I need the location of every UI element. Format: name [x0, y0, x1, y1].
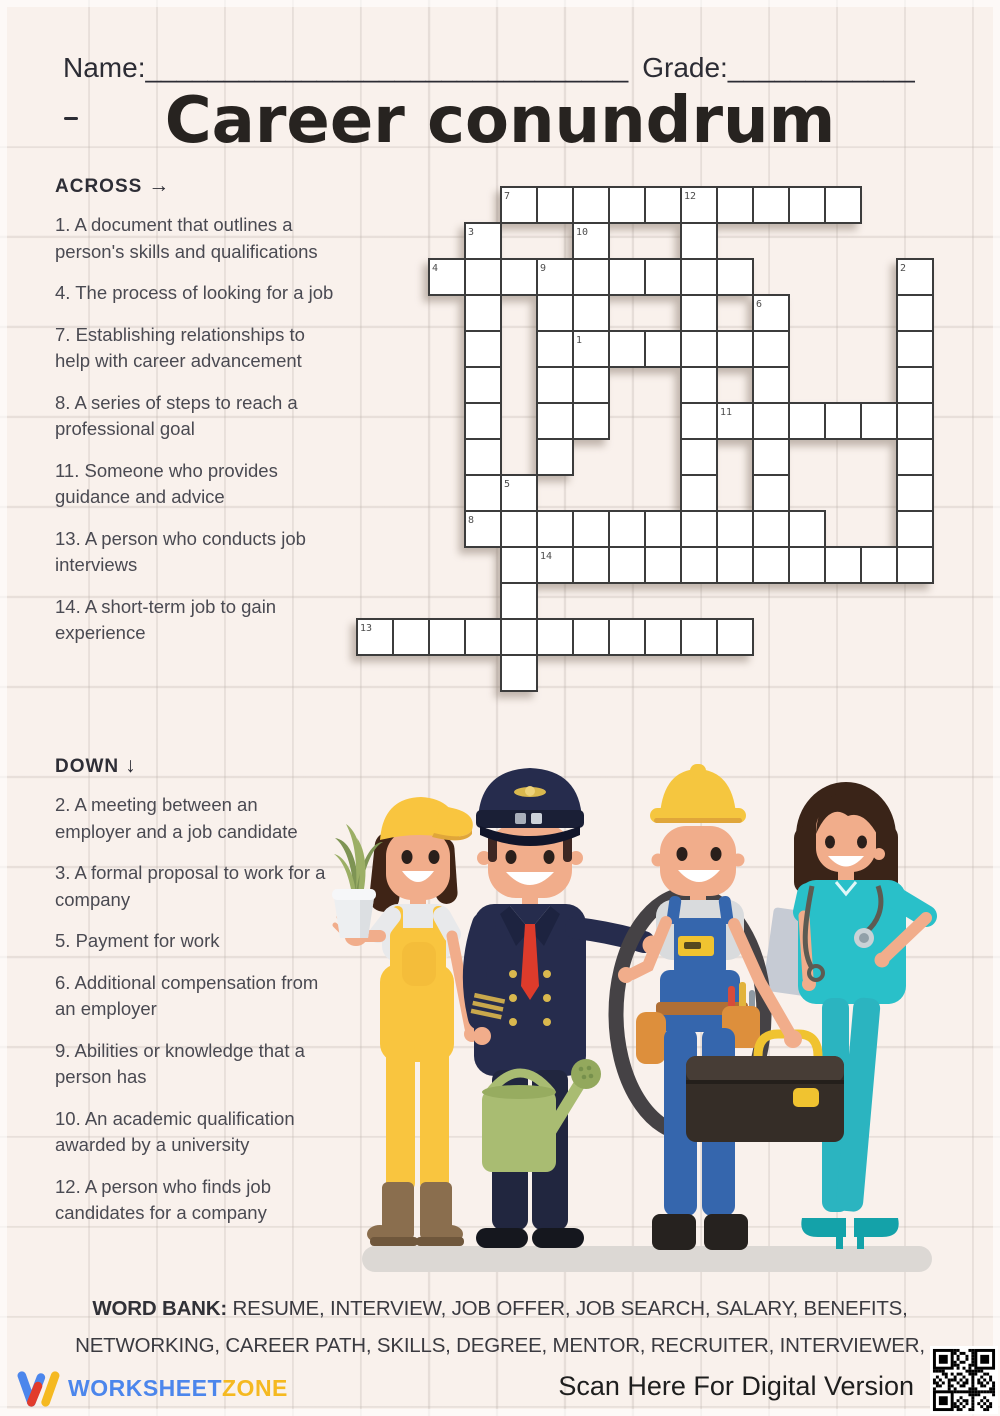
- puzzle-cell-r12c8: [645, 619, 681, 655]
- puzzle-cell-r3c5: [537, 295, 573, 331]
- puzzle-cell-r7c3: [465, 439, 501, 475]
- puzzle-cell-r0c6: [573, 187, 609, 223]
- word-bank-label: WORD BANK:: [92, 1297, 227, 1320]
- puzzle-cell-r10c14: [861, 547, 897, 583]
- puzzle-cell-r4c9: [681, 331, 717, 367]
- puzzle-cell-r9c11: [753, 511, 789, 547]
- clue-down-12: 12. A person who finds job candidates fo…: [55, 1174, 337, 1227]
- puzzle-cell-r9c6: [573, 511, 609, 547]
- puzzle-cell-r12c7: [609, 619, 645, 655]
- puzzle-cell-r4c3: [465, 331, 501, 367]
- puzzle-cell-r3c9: [681, 295, 717, 331]
- puzzle-cell-r5c15: [897, 367, 933, 403]
- puzzle-cell-r8c9: [681, 475, 717, 511]
- platform-shape: [362, 1246, 932, 1272]
- puzzle-cell-r5c3: [465, 367, 501, 403]
- puzzle-cell-r4c15: [897, 331, 933, 367]
- clue-across-13: 13. A person who conducts job interviews: [55, 526, 337, 579]
- puzzle-number-4: 4: [432, 263, 438, 274]
- puzzle-cell-r6c11: [753, 403, 789, 439]
- puzzle-cell-r8c3: [465, 475, 501, 511]
- puzzle-cell-r3c15: [897, 295, 933, 331]
- puzzle-number-10: 10: [576, 227, 588, 238]
- puzzle-cell-r7c5: [537, 439, 573, 475]
- grade-label: Grade:: [642, 52, 728, 83]
- puzzle-cell-r7c9: [681, 439, 717, 475]
- puzzle-cell-r2c8: [645, 259, 681, 295]
- puzzle-cell-r10c11: [753, 547, 789, 583]
- clue-down-3: 3. A formal proposal to work for a compa…: [55, 860, 337, 913]
- puzzle-cell-r5c9: [681, 367, 717, 403]
- puzzle-cell-r10c12: [789, 547, 825, 583]
- workers-illustration: [330, 740, 970, 1280]
- clue-down-9: 9. Abilities or knowledge that a person …: [55, 1038, 337, 1091]
- clue-across-4: 4. The process of looking for a job: [55, 280, 337, 307]
- clue-down-2: 2. A meeting between an employer and a j…: [55, 792, 337, 845]
- puzzle-cell-r0c13: [825, 187, 861, 223]
- puzzle-cell-r6c3: [465, 403, 501, 439]
- puzzle-number-6: 6: [756, 299, 762, 310]
- puzzle-cell-r13c4: [501, 655, 537, 691]
- word-bank: WORD BANK: RESUME, INTERVIEW, JOB OFFER,…: [0, 1290, 1000, 1364]
- puzzle-cell-r10c4: [501, 547, 537, 583]
- puzzle-cell-r6c5: [537, 403, 573, 439]
- puzzle-cell-r2c3: [465, 259, 501, 295]
- puzzle-cell-r0c5: [537, 187, 573, 223]
- puzzle-cell-r12c10: [717, 619, 753, 655]
- puzzle-cell-r12c4: [501, 619, 537, 655]
- puzzle-cell-r2c4: [501, 259, 537, 295]
- puzzle-cell-r12c6: [573, 619, 609, 655]
- puzzle-cell-r10c10: [717, 547, 753, 583]
- puzzle-cell-r5c6: [573, 367, 609, 403]
- clue-across-11: 11. Someone who provides guidance and ad…: [55, 458, 337, 511]
- puzzle-cell-r10c7: [609, 547, 645, 583]
- puzzle-cell-r12c9: [681, 619, 717, 655]
- puzzle-number-9: 9: [540, 263, 546, 274]
- clue-down-5: 5. Payment for work: [55, 928, 337, 955]
- puzzle-cell-r6c13: [825, 403, 861, 439]
- puzzle-cell-r9c10: [717, 511, 753, 547]
- puzzle-cell-r9c8: [645, 511, 681, 547]
- gardener-figure: [332, 797, 480, 1246]
- puzzle-number-3: 3: [468, 227, 474, 238]
- puzzle-cell-r6c12: [789, 403, 825, 439]
- clue-across-7: 7. Establishing relationships to help wi…: [55, 322, 337, 375]
- puzzle-cell-r3c3: [465, 295, 501, 331]
- down-clues-section: DOWN↓ 2. A meeting between an employer a…: [55, 754, 337, 1242]
- puzzle-cell-r12c2: [429, 619, 465, 655]
- puzzle-cell-r12c3: [465, 619, 501, 655]
- puzzle-cell-r6c14: [861, 403, 897, 439]
- puzzle-cell-r10c15: [897, 547, 933, 583]
- puzzle-cell-r7c15: [897, 439, 933, 475]
- puzzle-cell-r2c7: [609, 259, 645, 295]
- puzzle-cell-r12c1: [393, 619, 429, 655]
- puzzle-cell-r10c6: [573, 547, 609, 583]
- puzzle-number-7: 7: [504, 191, 510, 202]
- puzzle-number-12: 12: [684, 191, 696, 202]
- worker-hand-shape: [784, 1030, 802, 1048]
- puzzle-cell-r6c6: [573, 403, 609, 439]
- puzzle-cell-r10c13: [825, 547, 861, 583]
- puzzle-cell-r9c5: [537, 511, 573, 547]
- puzzle-cell-r6c15: [897, 403, 933, 439]
- puzzle-cell-r3c6: [573, 295, 609, 331]
- puzzle-cell-r10c8: [645, 547, 681, 583]
- across-clues-section: ACROSS→ 1. A document that outlines a pe…: [55, 174, 337, 662]
- puzzle-cell-r10c9: [681, 547, 717, 583]
- puzzle-number-14: 14: [540, 551, 552, 562]
- puzzle-cell-r9c7: [609, 511, 645, 547]
- puzzle-number-5: 5: [504, 479, 510, 490]
- down-arrow-icon: ↓: [125, 754, 136, 777]
- puzzle-cell-r0c7: [609, 187, 645, 223]
- puzzle-cell-r1c9: [681, 223, 717, 259]
- puzzle-cell-r8c11: [753, 475, 789, 511]
- name-label: Name:: [63, 52, 145, 83]
- nurse-figure: [794, 782, 926, 1249]
- puzzle-cell-r0c11: [753, 187, 789, 223]
- puzzle-cell-r7c11: [753, 439, 789, 475]
- clue-down-10: 10. An academic qualification awarded by…: [55, 1106, 337, 1159]
- puzzle-cell-r9c15: [897, 511, 933, 547]
- puzzle-number-2: 2: [900, 263, 906, 274]
- puzzle-cell-r5c5: [537, 367, 573, 403]
- word-bank-line1: WORD BANK: RESUME, INTERVIEW, JOB OFFER,…: [0, 1290, 1000, 1327]
- down-heading: DOWN↓: [55, 754, 337, 778]
- clue-across-8: 8. A series of steps to reach a professi…: [55, 390, 337, 443]
- puzzle-cell-r2c10: [717, 259, 753, 295]
- pilot-figure: [471, 768, 662, 1248]
- puzzle-cell-r4c10: [717, 331, 753, 367]
- puzzle-cell-r9c12: [789, 511, 825, 547]
- scan-here-text: Scan Here For Digital Version: [558, 1371, 914, 1402]
- puzzle-cell-r5c11: [753, 367, 789, 403]
- puzzle-number-11: 11: [720, 407, 732, 418]
- grade-blank-line: ____________: [728, 52, 915, 83]
- puzzle-cell-r0c10: [717, 187, 753, 223]
- puzzle-number-1: 1: [576, 335, 582, 346]
- clue-down-6: 6. Additional compensation from an emplo…: [55, 970, 337, 1023]
- across-heading: ACROSS→: [55, 174, 337, 198]
- puzzle-number-8: 8: [468, 515, 474, 526]
- puzzle-number-13: 13: [360, 623, 372, 634]
- puzzle-cell-r2c9: [681, 259, 717, 295]
- puzzle-cell-r4c8: [645, 331, 681, 367]
- name-blank-line: _______________________________: [145, 52, 628, 83]
- worksheetzone-logo-icon: [16, 1368, 60, 1408]
- puzzle-cell-r4c5: [537, 331, 573, 367]
- crossword-grid: 7123104926111581413: [356, 186, 934, 692]
- clue-across-1: 1. A document that outlines a person's s…: [55, 212, 337, 265]
- right-arrow-icon: →: [148, 174, 169, 197]
- brand-logo: WORKSHEETZONE: [16, 1368, 288, 1408]
- puzzle-cell-r6c9: [681, 403, 717, 439]
- puzzle-cell-r4c7: [609, 331, 645, 367]
- puzzle-cell-r0c12: [789, 187, 825, 223]
- brand-text-worksheet: WORKSHEET: [68, 1375, 222, 1401]
- puzzle-cell-r9c9: [681, 511, 717, 547]
- qr-code: [930, 1346, 998, 1414]
- word-bank-line2: NETWORKING, CAREER PATH, SKILLS, DEGREE,…: [0, 1327, 1000, 1364]
- puzzle-cell-r4c11: [753, 331, 789, 367]
- puzzle-cell-r0c8: [645, 187, 681, 223]
- brand-text-zone: ZONE: [222, 1375, 288, 1401]
- page-title: Career conundrum: [0, 84, 1000, 158]
- puzzle-cell-r8c15: [897, 475, 933, 511]
- clue-across-14: 14. A short-term job to gain experience: [55, 594, 337, 647]
- puzzle-cell-r9c4: [501, 511, 537, 547]
- puzzle-cell-r2c6: [573, 259, 609, 295]
- puzzle-cell-r11c4: [501, 583, 537, 619]
- name-grade-row: Name:_______________________________Grad…: [63, 52, 963, 84]
- construction-worker-figure: [618, 764, 760, 1250]
- puzzle-cell-r12c5: [537, 619, 573, 655]
